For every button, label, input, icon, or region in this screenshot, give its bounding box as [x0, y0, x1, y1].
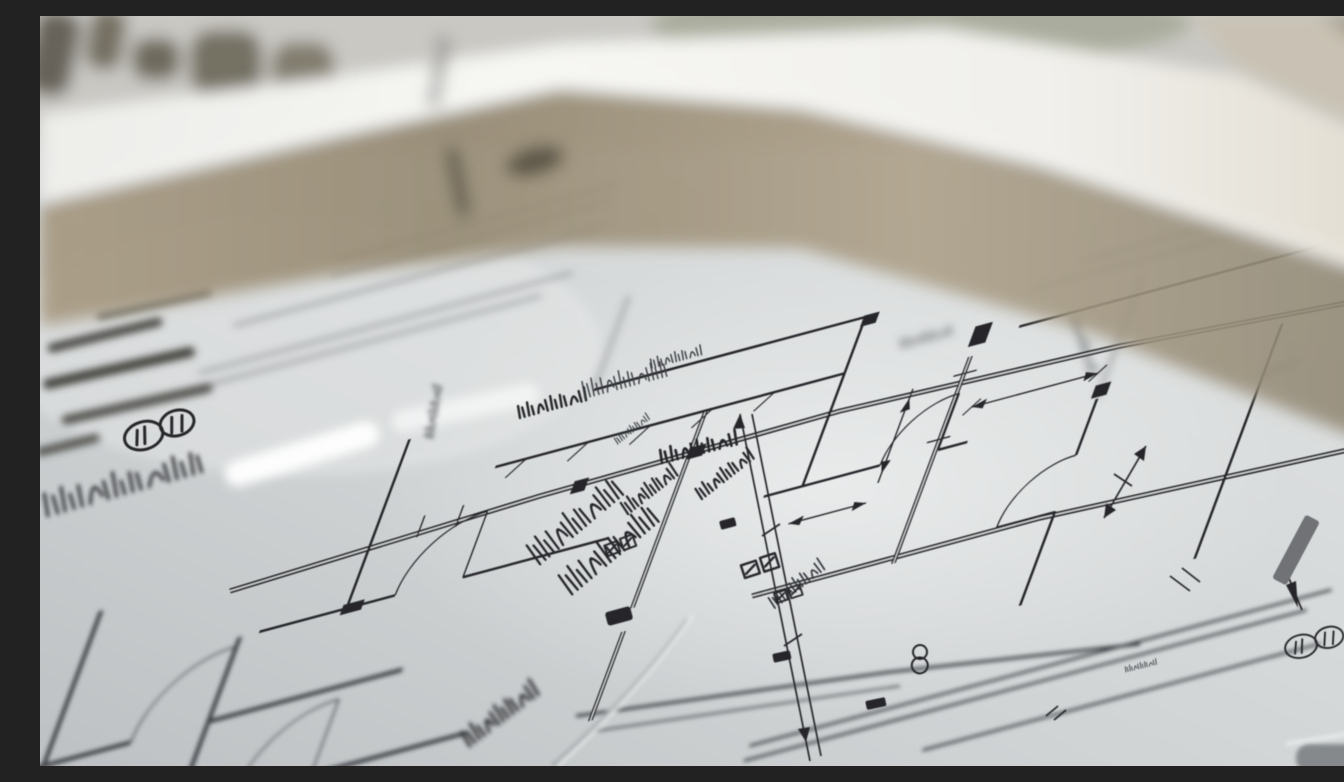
dark-blob [190, 30, 262, 96]
corner-object [1296, 744, 1344, 766]
dark-blob [132, 38, 180, 80]
blueprint-photo-canvas [40, 16, 1344, 766]
blueprint-photo-scene: Close-up photograph of architectural blu… [40, 16, 1344, 766]
